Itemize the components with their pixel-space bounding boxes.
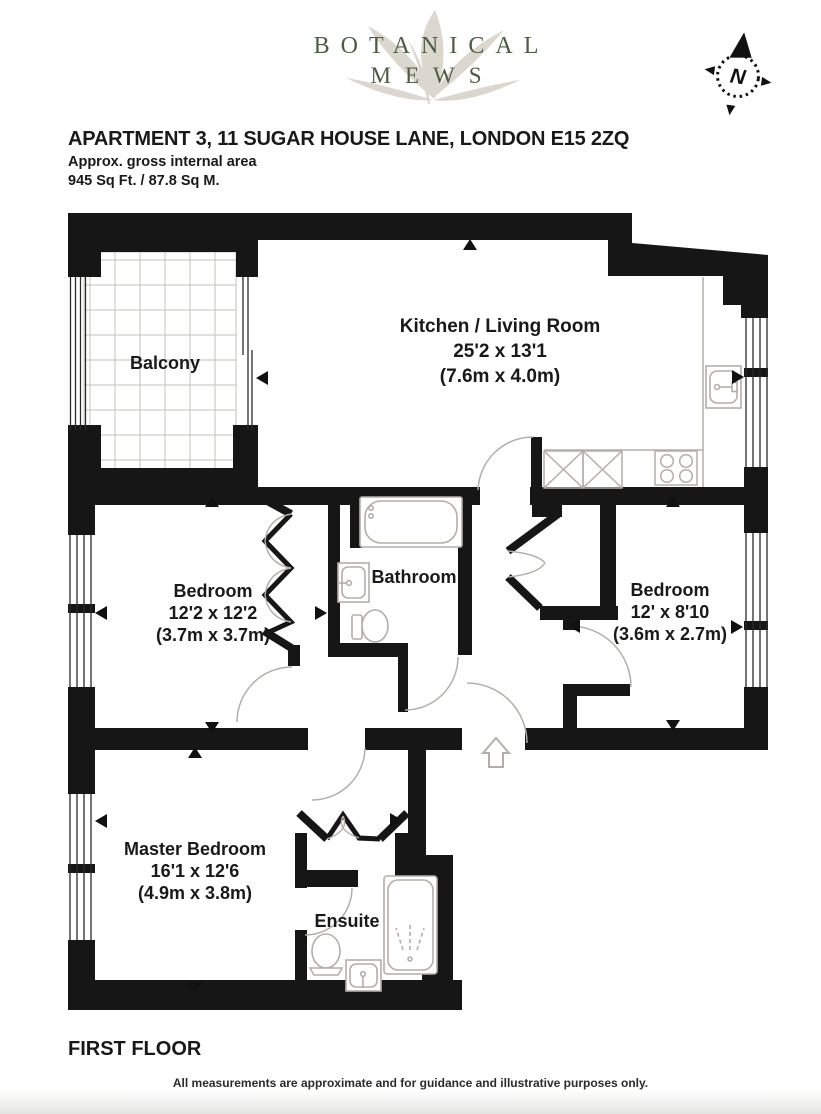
sliding-door xyxy=(243,277,252,430)
floor-plan xyxy=(0,0,821,1114)
ensuite-toilet-icon xyxy=(310,934,342,975)
disclaimer-text: All measurements are approximate and for… xyxy=(0,1076,821,1090)
ensuite-sink-icon xyxy=(346,960,381,991)
room-label-bedroom-right: Bedroom 12' x 8'10 (3.6m x 2.7m) xyxy=(613,579,727,645)
floorplan-page: BOTANICAL MEWS N APARTMENT 3, 11 SUGAR H… xyxy=(0,0,821,1114)
room-label-bathroom: Bathroom xyxy=(372,566,457,588)
room-label-bedroom-left: Bedroom 12'2 x 12'2 (3.7m x 3.7m) xyxy=(156,580,270,646)
room-name: Bedroom xyxy=(156,580,270,602)
room-size-metric: (4.9m x 3.8m) xyxy=(124,882,266,904)
bathtub-icon xyxy=(360,497,462,547)
bathroom-sink-icon xyxy=(338,563,369,602)
room-name: Balcony xyxy=(130,352,200,374)
room-size-metric: (7.6m x 4.0m) xyxy=(400,364,601,389)
room-label-kitchen-living: Kitchen / Living Room 25'2 x 13'1 (7.6m … xyxy=(400,314,601,389)
room-name: Master Bedroom xyxy=(124,838,266,860)
room-size-imperial: 12' x 8'10 xyxy=(613,601,727,623)
room-label-ensuite: Ensuite xyxy=(314,910,379,932)
room-size-imperial: 25'2 x 13'1 xyxy=(400,339,601,364)
kitchen-units-icon xyxy=(544,451,622,488)
entrance-arrow-icon xyxy=(483,738,509,767)
room-name: Kitchen / Living Room xyxy=(400,314,601,339)
room-name: Ensuite xyxy=(314,910,379,932)
room-size-imperial: 12'2 x 12'2 xyxy=(156,602,270,624)
hob-icon xyxy=(655,451,697,485)
room-name: Bathroom xyxy=(372,566,457,588)
room-label-balcony: Balcony xyxy=(130,352,200,374)
toilet-icon xyxy=(352,610,388,642)
room-size-imperial: 16'1 x 12'6 xyxy=(124,860,266,882)
room-label-master-bedroom: Master Bedroom 16'1 x 12'6 (4.9m x 3.8m) xyxy=(124,838,266,904)
shower-icon xyxy=(384,876,437,974)
room-name: Bedroom xyxy=(613,579,727,601)
floor-label: FIRST FLOOR xyxy=(68,1038,201,1061)
room-size-metric: (3.7m x 3.7m) xyxy=(156,624,270,646)
room-size-metric: (3.6m x 2.7m) xyxy=(613,623,727,645)
bottom-fade xyxy=(0,1090,821,1114)
